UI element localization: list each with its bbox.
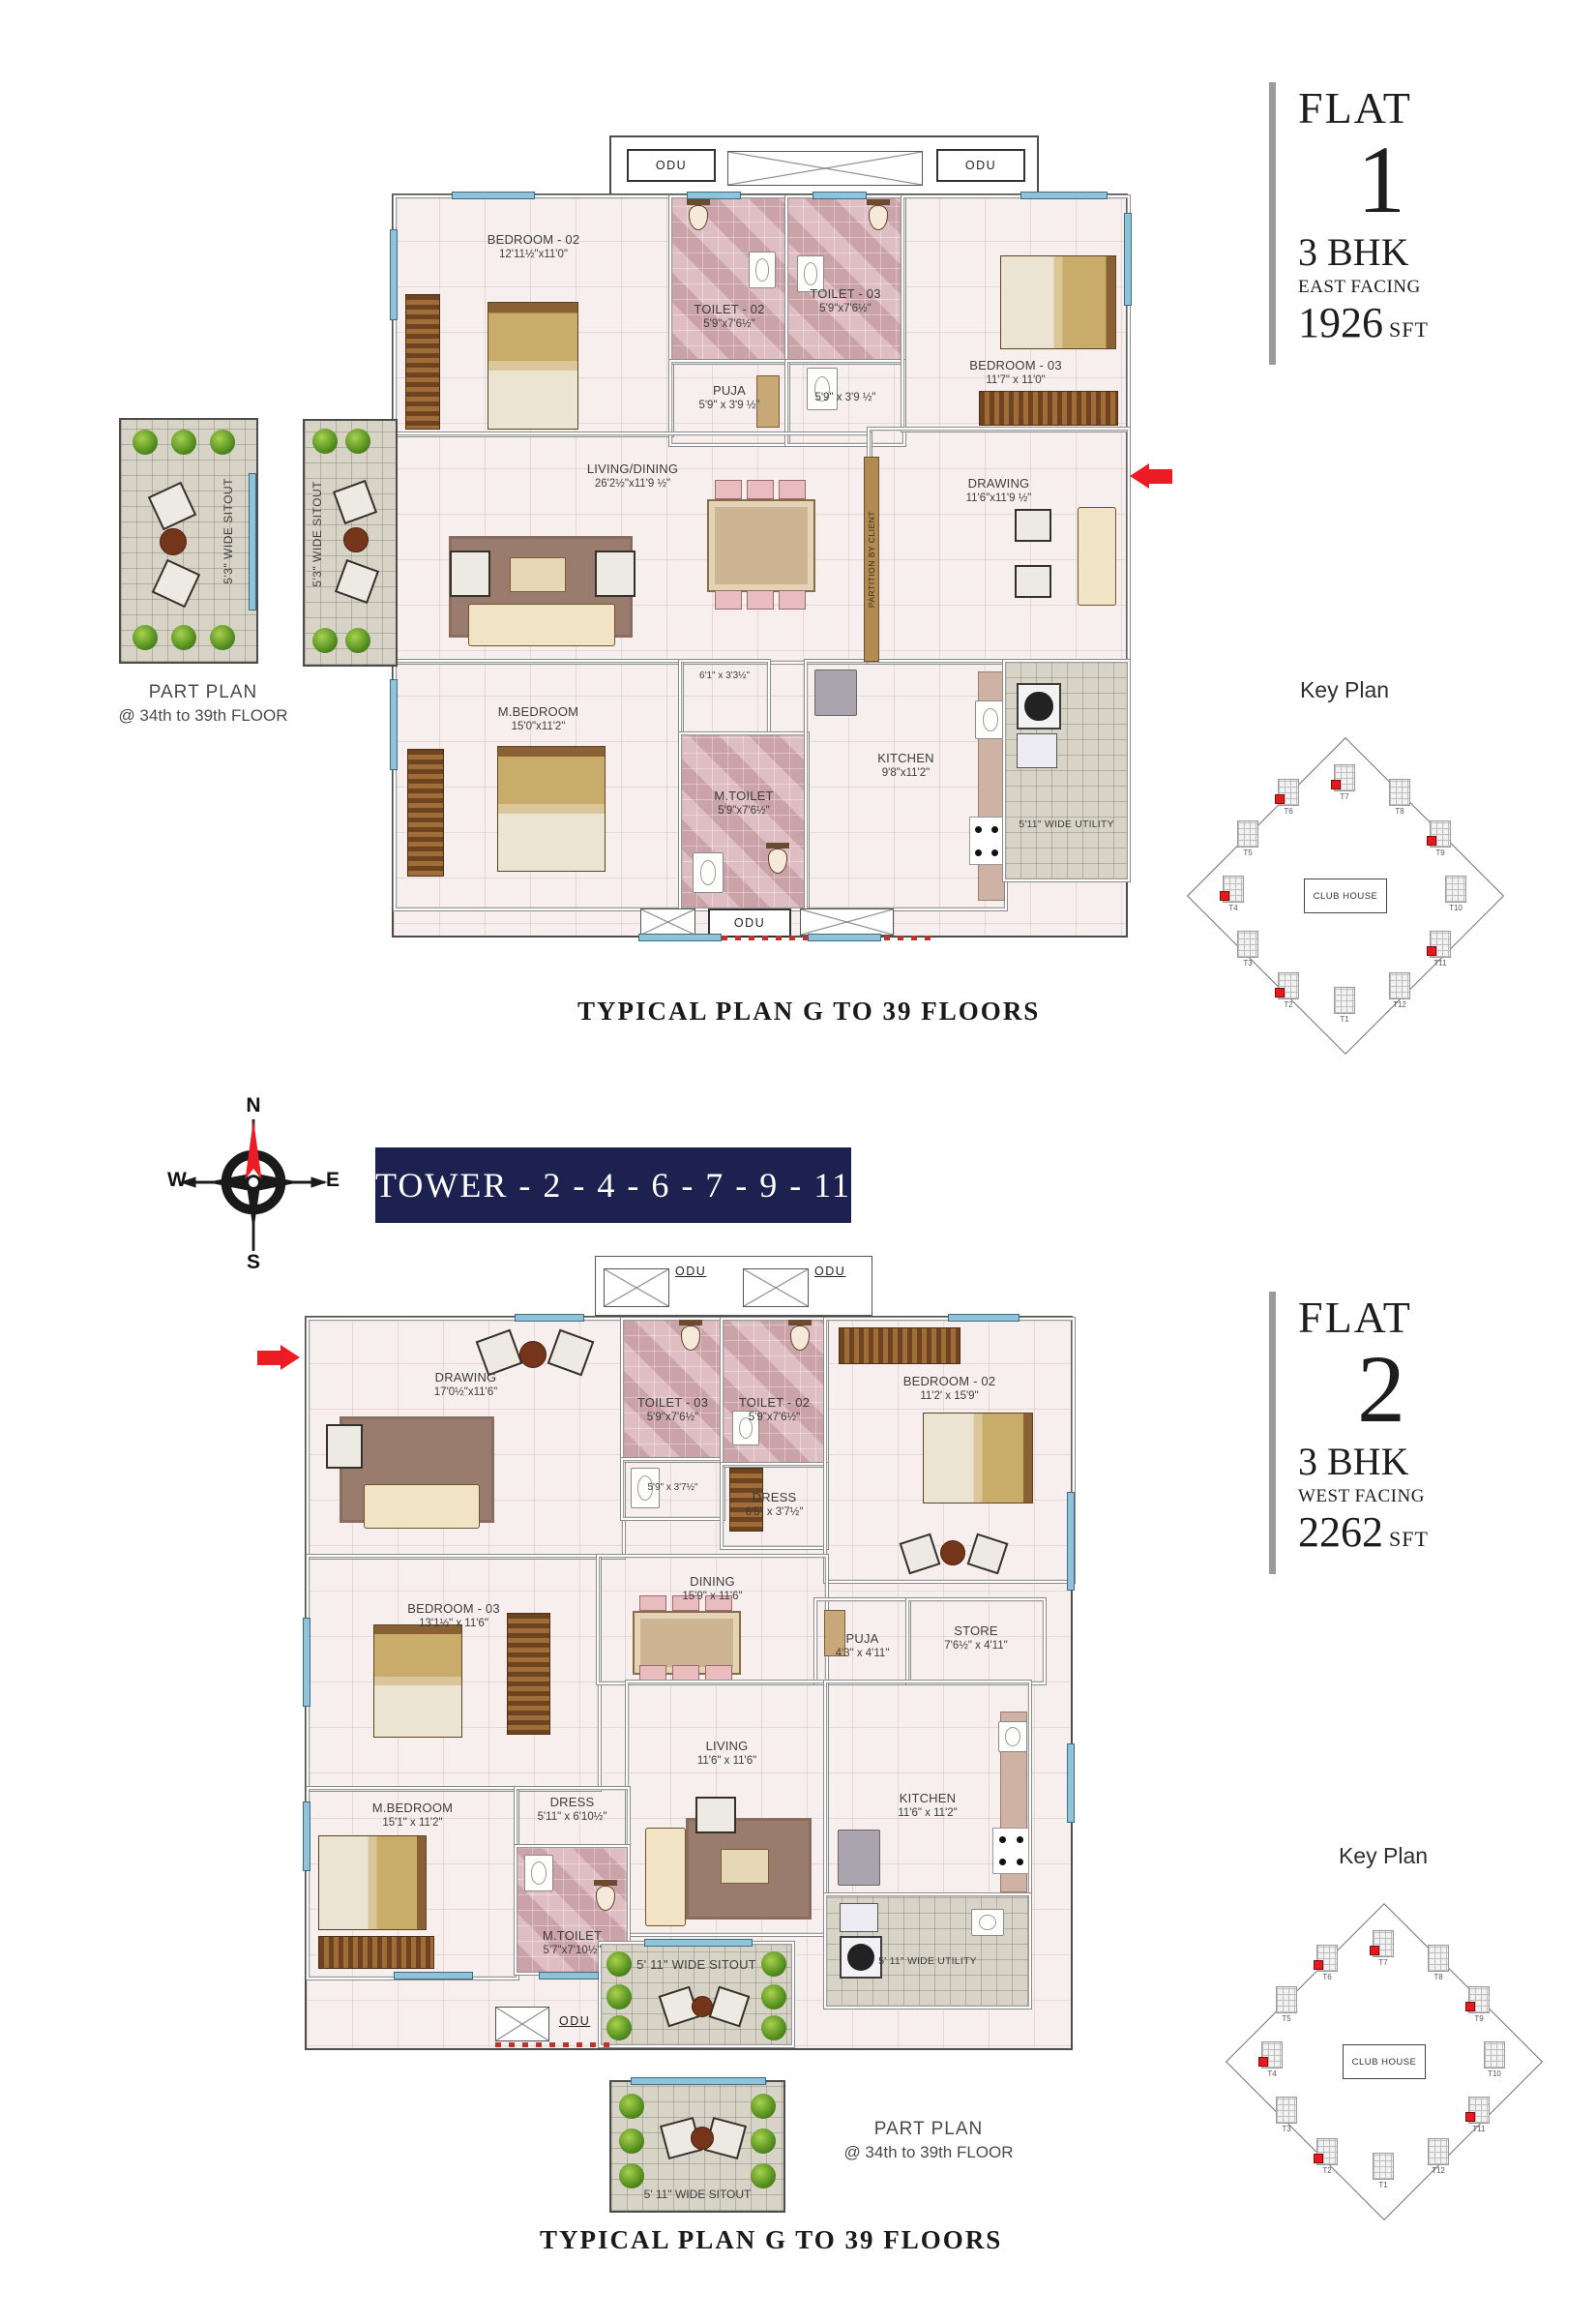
flat1-area-unit: SFT xyxy=(1389,317,1429,342)
keyplan-tower-t8: T8 xyxy=(1422,1945,1455,1981)
sitout-label: 5'3" WIDE SITOUT xyxy=(222,478,235,584)
keyplan-tower-t12: T12 xyxy=(1383,972,1416,1009)
tower-icon xyxy=(1276,1986,1297,2013)
club-house: CLUB HOUSE xyxy=(1343,2044,1426,2079)
room-toilet-03: TOILET - 03 5'9"x7'6½" xyxy=(785,195,905,364)
sink-icon xyxy=(971,1909,1004,1936)
keyplan-tower-t3: T3 xyxy=(1231,931,1264,967)
window xyxy=(948,1314,1020,1322)
room-puja: PUJA 4'3" x 4'11" xyxy=(814,1598,910,1684)
flat2-info-panel: FLAT 2 3 BHK WEST FACING 2262SFT xyxy=(1269,1292,1464,1557)
window xyxy=(687,192,741,199)
tower-icon xyxy=(1428,2138,1449,2165)
keyplan-tower-t5: T5 xyxy=(1270,1986,1303,2023)
room-wash-label: 5'9" x 3'7½" xyxy=(621,1458,724,1520)
sitout-attached: 5'3" WIDE SITOUT xyxy=(303,419,398,667)
plant-icon xyxy=(171,625,196,650)
toilet-icon xyxy=(681,1325,700,1351)
room-dining: DINING 15'9" x 11'6" xyxy=(597,1555,828,1684)
room-label: 5'9" x 3'9 ½" xyxy=(787,391,903,405)
sink-icon xyxy=(749,252,776,288)
flat1-info-panel: FLAT 1 3 BHK EAST FACING 1926SFT xyxy=(1269,82,1464,347)
key-plan-1: Key Plan CLUB HOUSE T1 T2 T3 T4 T5 T6 T7… xyxy=(1161,677,1528,1064)
room-store: STORE 7'6½" x 4'11" xyxy=(906,1598,1046,1684)
room-label: 5' 11" WIDE UTILITY xyxy=(826,1955,1029,1968)
keyplan-tower-t6: T6 xyxy=(1311,1945,1344,1981)
compass-rose-icon xyxy=(171,1100,336,1265)
tower-icon xyxy=(1278,779,1299,806)
room-label: TOILET - 02 5'9"x7'6½" xyxy=(671,302,787,331)
room-label: 5' 11" WIDE SITOUT xyxy=(601,1957,792,1973)
keyplan-tower-t1: T1 xyxy=(1367,2153,1400,2189)
room-bedroom-02: BEDROOM - 02 11'2' x 15'9" xyxy=(824,1318,1075,1583)
keyplan-tower-t5: T5 xyxy=(1231,820,1264,857)
keyplan-tower-t10: T10 xyxy=(1439,876,1472,912)
flat2-odu-assembly-bottom: ODU xyxy=(495,2007,621,2047)
plant-icon xyxy=(312,429,338,454)
tower-icon xyxy=(1468,1986,1490,2013)
compass-rose: N W E S xyxy=(171,1100,336,1265)
fridge-icon xyxy=(814,670,857,716)
window xyxy=(1124,213,1132,306)
plant-icon xyxy=(751,2094,776,2119)
window xyxy=(813,192,867,199)
room-label: PUJA 4'3" x 4'11" xyxy=(816,1631,908,1660)
sitout-label: 5'3" WIDE SITOUT xyxy=(310,481,324,587)
tower-icon xyxy=(1278,972,1299,999)
toilet-icon xyxy=(596,1886,615,1911)
keyplan-tower-t7: T7 xyxy=(1367,1930,1400,1967)
keyplan-tower-t9: T9 xyxy=(1424,820,1457,857)
part-plan-line1: PART PLAN xyxy=(92,682,314,703)
coffee-table-icon xyxy=(510,557,566,592)
flat1-number: 1 xyxy=(1298,134,1464,225)
room-label: 5'11" WIDE UTILITY xyxy=(1005,819,1128,831)
room-label: BEDROOM - 03 13'1½" x 11'6" xyxy=(309,1601,599,1630)
room-label: LIVING 11'6" x 11'6" xyxy=(628,1739,826,1768)
sofa-icon xyxy=(645,1828,686,1926)
entry-arrow-flat2 xyxy=(257,1345,300,1370)
odu-label: ODU xyxy=(965,159,996,172)
room-m-bedroom: M.BEDROOM 15'0"x11'2" xyxy=(394,660,683,910)
sitout-part-plan: 5'3" WIDE SITOUT xyxy=(119,418,258,664)
window xyxy=(638,934,722,941)
toilet-icon xyxy=(790,1325,810,1351)
red-dash-strip xyxy=(495,2042,611,2047)
floor-plan-brochure: FLAT 1 3 BHK EAST FACING 1926SFT ODU ODU… xyxy=(0,0,1596,2322)
wardrobe-icon xyxy=(405,294,440,430)
lounge-chair-icon xyxy=(335,559,379,604)
round-table-icon xyxy=(519,1341,547,1368)
window xyxy=(390,229,398,320)
louver-hatch xyxy=(495,2007,549,2041)
dining-chair-icon xyxy=(747,590,774,610)
flat2-number: 2 xyxy=(1298,1343,1464,1435)
room-m-bedroom: M.BEDROOM 15'1" x 11'2" xyxy=(307,1787,518,1980)
room-label: DINING 15'9" x 11'6" xyxy=(599,1574,826,1603)
flat1-facing: EAST FACING xyxy=(1298,277,1464,298)
louver-hatch xyxy=(640,908,695,936)
room-label: DRESS 6'5" x 3'7½" xyxy=(723,1490,826,1519)
stove-icon xyxy=(992,1828,1029,1874)
plant-icon xyxy=(133,430,158,455)
room-bedroom-03: BEDROOM - 03 11'7" x 11'0" xyxy=(901,195,1130,432)
coffee-table-icon xyxy=(721,1849,769,1884)
flat2-area: 2262SFT xyxy=(1298,1507,1464,1557)
window xyxy=(303,1618,310,1707)
window xyxy=(452,192,535,199)
flat2-facing: WEST FACING xyxy=(1298,1486,1464,1507)
sitout-part-plan-flat2: 5' 11" WIDE SITOUT xyxy=(609,2080,785,2213)
bed-icon xyxy=(488,302,578,430)
lounge-chair-icon xyxy=(148,482,196,530)
room-label: M.TOILET 5'7"x7'10½" xyxy=(517,1928,628,1957)
key-plan-title: Key Plan xyxy=(1161,677,1528,703)
fridge-icon xyxy=(838,1830,880,1886)
sink-icon xyxy=(998,1721,1027,1752)
plant-icon xyxy=(312,628,338,653)
armchair-icon xyxy=(1015,565,1051,598)
part-plan-line2: @ 34th to 39th FLOOR xyxy=(817,2143,1040,2162)
round-table-icon xyxy=(691,2127,714,2150)
room-label: LIVING/DINING 26'2½"x11'9 ½" xyxy=(396,461,870,491)
wardrobe-icon xyxy=(318,1936,434,1969)
keyplan-tower-t11: T11 xyxy=(1424,931,1457,967)
window xyxy=(303,1801,310,1871)
window xyxy=(1067,1743,1075,1823)
room-kitchen: KITCHEN 11'6" x 11'2" xyxy=(824,1681,1031,1897)
odu-label: ODU xyxy=(656,159,687,172)
arrow-head-icon xyxy=(1130,463,1149,489)
dining-chair-icon xyxy=(672,1665,699,1681)
room-label: KITCHEN 11'6" x 11'2" xyxy=(826,1791,1029,1820)
wardrobe-icon xyxy=(979,391,1118,426)
louver-hatch xyxy=(604,1268,669,1307)
flat1-odu-assembly-top: ODU ODU xyxy=(609,135,1039,199)
bed-icon xyxy=(318,1835,427,1930)
plant-icon xyxy=(345,429,370,454)
room-drawing: DRAWING 11'6"x11'9 ½" xyxy=(868,428,1130,664)
room-label: 5'9" x 3'7½" xyxy=(623,1481,723,1494)
compass-w: W xyxy=(167,1169,187,1192)
odu-label: ODU xyxy=(734,916,765,930)
part-plan-line2: @ 34th to 39th FLOOR xyxy=(92,706,314,726)
room-kitchen: KITCHEN 9'8"x11'2" xyxy=(805,660,1007,910)
plant-icon xyxy=(210,625,235,650)
tower-icon xyxy=(1389,972,1410,999)
compass-e: E xyxy=(326,1169,340,1192)
tower-icon xyxy=(1237,931,1258,958)
armchair-icon xyxy=(695,1797,736,1833)
flat2-type: 3 BHK xyxy=(1298,1439,1464,1484)
wardrobe-icon xyxy=(407,749,444,877)
toilet-icon xyxy=(768,848,787,874)
room-toilet-03: TOILET - 03 5'9"x7'6½" xyxy=(621,1318,724,1462)
room-label: KITCHEN 9'8"x11'2" xyxy=(807,751,1005,780)
room-m-toilet: M.TOILET 5'9"x7'6½" xyxy=(679,732,809,910)
room-living-dining: LIVING/DINING 26'2½"x11'9 ½" xyxy=(394,432,872,664)
keyplan-tower-t12: T12 xyxy=(1422,2138,1455,2175)
compass-n: N xyxy=(246,1094,260,1117)
window xyxy=(644,1939,753,1947)
keyplan-tower-t4: T4 xyxy=(1217,876,1250,912)
window xyxy=(631,2077,766,2085)
room-label: BEDROOM - 02 11'2' x 15'9" xyxy=(826,1374,1073,1403)
keyplan-tower-t7: T7 xyxy=(1328,764,1361,801)
key-plan-title: Key Plan xyxy=(1199,1843,1567,1869)
room-passage: 6'1" x 3'3½" xyxy=(679,660,770,736)
window xyxy=(394,1972,473,1980)
tower-icon xyxy=(1261,2041,1283,2069)
stove-icon xyxy=(969,817,1004,865)
odu-unit: ODU xyxy=(936,149,1025,182)
bed-icon xyxy=(923,1413,1033,1503)
tower-banner: TOWER - 2 - 4 - 6 - 7 - 9 - 11 xyxy=(375,1147,851,1223)
partition-strip: PARTITION BY CLIENT xyxy=(864,457,879,662)
room-label: 6'1" x 3'3½" xyxy=(681,670,768,682)
toilet-icon xyxy=(689,205,708,230)
flat1-area: 1926SFT xyxy=(1298,298,1464,347)
room-label: BEDROOM - 03 11'7" x 11'0" xyxy=(903,358,1128,387)
part-plan-note-flat2: PART PLAN @ 34th to 39th FLOOR xyxy=(817,2119,1040,2162)
tower-icon xyxy=(1276,2097,1297,2124)
divider-bar xyxy=(1269,1292,1276,1574)
plant-icon xyxy=(210,430,235,455)
arrow-head-icon xyxy=(281,1345,300,1370)
plant-icon xyxy=(619,2128,644,2154)
room-label: DRESS 5'11" x 6'10½" xyxy=(517,1795,628,1824)
keyplan-tower-t3: T3 xyxy=(1270,2097,1303,2133)
room-toilet-02: TOILET - 02 5'9"x7'6½" xyxy=(721,1318,828,1467)
odu-unit: ODU xyxy=(627,149,716,182)
flat1-area-value: 1926 xyxy=(1298,299,1383,346)
round-table-icon xyxy=(343,527,369,552)
flat2-area-value: 2262 xyxy=(1298,1508,1383,1556)
flat2-floor-plan: DRAWING 17'0½"x11'6" TOILET - 03 5'9"x7'… xyxy=(305,1316,1073,2050)
room-label: TOILET - 03 5'9"x7'6½" xyxy=(623,1395,723,1424)
keyplan-tower-t6: T6 xyxy=(1272,779,1305,816)
utility-box-icon xyxy=(1017,733,1057,768)
room-bedroom-03: BEDROOM - 03 13'1½" x 11'6" xyxy=(307,1555,601,1791)
armchair-icon xyxy=(450,551,490,597)
keyplan-tower-t4: T4 xyxy=(1256,2041,1288,2078)
room-sitout: 5' 11" WIDE SITOUT xyxy=(599,1942,794,2047)
plant-icon xyxy=(171,430,196,455)
arrow-shaft xyxy=(257,1351,281,1365)
part-plan-note-flat1: PART PLAN @ 34th to 39th FLOOR xyxy=(92,682,314,726)
tower-icon xyxy=(1316,2138,1338,2165)
louver-hatch xyxy=(743,1268,809,1307)
utility-box-icon xyxy=(840,1903,878,1932)
room-toilet-02: TOILET - 02 5'9"x7'6½" xyxy=(669,195,789,364)
room-label: TOILET - 03 5'9"x7'6½" xyxy=(787,286,903,315)
plant-icon xyxy=(619,2163,644,2188)
round-table-icon xyxy=(940,1540,965,1565)
room-label: DRAWING 11'6"x11'9 ½" xyxy=(870,476,1128,505)
lounge-chair-icon xyxy=(709,1986,751,2028)
keyplan-tower-t2: T2 xyxy=(1272,972,1305,1009)
window xyxy=(1067,1492,1075,1591)
armchair-icon xyxy=(595,551,635,597)
flat1-type: 3 BHK xyxy=(1298,229,1464,275)
room-label: M.BEDROOM 15'1" x 11'2" xyxy=(309,1801,517,1830)
louver-hatch xyxy=(727,151,923,186)
typical-plan-caption-2: TYPICAL PLAN G TO 39 FLOORS xyxy=(540,2225,1002,2255)
keyplan-tower-t8: T8 xyxy=(1383,779,1416,816)
room-utility: 5'11" WIDE UTILITY xyxy=(1003,660,1130,881)
lounge-chair-icon xyxy=(967,1533,1009,1575)
dining-chair-icon xyxy=(705,1665,732,1681)
dining-table-icon xyxy=(707,499,815,592)
plant-icon xyxy=(751,2128,776,2154)
tower-icon xyxy=(1428,1945,1449,1972)
odu-label: ODU xyxy=(675,1265,706,1278)
bed-icon xyxy=(497,746,606,872)
part-plan-line1: PART PLAN xyxy=(817,2119,1040,2140)
round-table-icon xyxy=(692,1996,713,2017)
flat1-floor-plan: BEDROOM - 02 12'11½"x11'0" TOILET - 02 5… xyxy=(392,193,1128,938)
tower-icon xyxy=(1223,876,1244,903)
window xyxy=(249,473,256,610)
louver-hatch xyxy=(800,908,894,936)
tower-icon xyxy=(1430,931,1451,958)
room-utility: 5' 11" WIDE UTILITY xyxy=(824,1893,1031,2009)
plant-icon xyxy=(761,2015,786,2040)
plant-icon xyxy=(751,2163,776,2188)
tower-icon xyxy=(1389,779,1410,806)
room-m-toilet: M.TOILET 5'7"x7'10½" xyxy=(515,1845,630,1975)
keyplan-tower-t10: T10 xyxy=(1478,2041,1511,2078)
washing-machine-icon xyxy=(1017,683,1061,729)
partition-label: PARTITION BY CLIENT xyxy=(867,511,876,608)
room-label: PUJA 5'9" x 3'9 ½" xyxy=(671,383,787,412)
tower-icon xyxy=(1468,2097,1490,2124)
dining-chair-icon xyxy=(639,1665,666,1681)
armchair-icon xyxy=(1015,509,1051,542)
room-label: M.BEDROOM 15'0"x11'2" xyxy=(396,704,681,733)
sink-icon xyxy=(693,852,724,893)
lounge-chair-icon xyxy=(333,480,377,524)
wardrobe-icon xyxy=(839,1327,961,1364)
bed-icon xyxy=(373,1624,462,1738)
tower-icon xyxy=(1373,1930,1394,1957)
flat2-area-unit: SFT xyxy=(1389,1527,1429,1551)
plant-icon xyxy=(133,625,158,650)
room-label: TOILET - 02 5'9"x7'6½" xyxy=(723,1395,826,1424)
typical-plan-caption-1: TYPICAL PLAN G TO 39 FLOORS xyxy=(577,997,1040,1027)
window xyxy=(390,679,398,770)
odu-label: ODU xyxy=(814,1265,845,1278)
tower-icon xyxy=(1334,764,1355,791)
round-table-icon xyxy=(160,528,187,555)
room-bedroom-02: BEDROOM - 02 12'11½"x11'0" xyxy=(394,195,673,436)
sofa-icon xyxy=(1078,507,1116,606)
tower-icon xyxy=(1316,1945,1338,1972)
tower-icon xyxy=(1445,876,1466,903)
flat1-odu-assembly-bottom: ODU xyxy=(640,907,931,936)
wardrobe-icon xyxy=(507,1613,550,1735)
keyplan-tower-t11: T11 xyxy=(1463,2097,1495,2133)
divider-bar xyxy=(1269,82,1276,365)
tower-icon xyxy=(1334,987,1355,1014)
odu-label: ODU xyxy=(559,2014,590,2028)
room-dress-1: DRESS 6'5" x 3'7½" xyxy=(721,1463,828,1549)
sofa-icon xyxy=(468,604,615,646)
window xyxy=(808,934,881,941)
room-drawing: DRAWING 17'0½"x11'6" xyxy=(307,1318,625,1559)
keyplan-tower-t1: T1 xyxy=(1328,987,1361,1024)
keyplan-tower-t9: T9 xyxy=(1463,1986,1495,2023)
lounge-chair-icon xyxy=(900,1533,941,1575)
keyplan-tower-t2: T2 xyxy=(1311,2138,1344,2175)
tower-icon xyxy=(1484,2041,1505,2069)
plant-icon xyxy=(761,1984,786,2009)
tower-icon xyxy=(1237,820,1258,848)
room-dress-2: DRESS 5'11" x 6'10½" xyxy=(515,1787,630,1849)
room-label: DRAWING 17'0½"x11'6" xyxy=(309,1370,623,1399)
room-label: M.TOILET 5'9"x7'6½" xyxy=(681,789,807,818)
club-house: CLUB HOUSE xyxy=(1304,878,1387,913)
bed-icon xyxy=(1000,255,1116,349)
lounge-chair-icon xyxy=(152,559,200,608)
tower-icon xyxy=(1373,2153,1394,2180)
window xyxy=(539,1972,599,1980)
armchair-icon xyxy=(326,1424,363,1469)
flat2-odu-assembly-top: ODU ODU xyxy=(595,1256,872,1316)
key-plan-2: Key Plan CLUB HOUSE T1 T2 T3 T4 T5 T6 T7… xyxy=(1199,1843,1567,2230)
room-label: BEDROOM - 02 12'11½"x11'0" xyxy=(396,232,671,261)
window xyxy=(515,1314,584,1322)
dining-chair-icon xyxy=(715,590,742,610)
entry-arrow-flat1 xyxy=(1130,463,1172,489)
compass-s: S xyxy=(247,1251,260,1274)
tower-icon xyxy=(1430,820,1451,848)
plant-icon xyxy=(619,2094,644,2119)
sitout-label: 5' 11" WIDE SITOUT xyxy=(611,2188,783,2201)
sink-icon xyxy=(524,1855,553,1891)
toilet-icon xyxy=(869,205,888,230)
dining-chair-icon xyxy=(779,590,806,610)
plant-icon xyxy=(345,628,370,653)
arrow-shaft xyxy=(1149,469,1172,484)
sink-icon xyxy=(975,700,1006,739)
sofa-icon xyxy=(364,1484,480,1529)
window xyxy=(1020,192,1108,199)
room-label: STORE 7'6½" x 4'11" xyxy=(908,1623,1044,1652)
room-living: LIVING 11'6" x 11'6" xyxy=(626,1681,828,1936)
